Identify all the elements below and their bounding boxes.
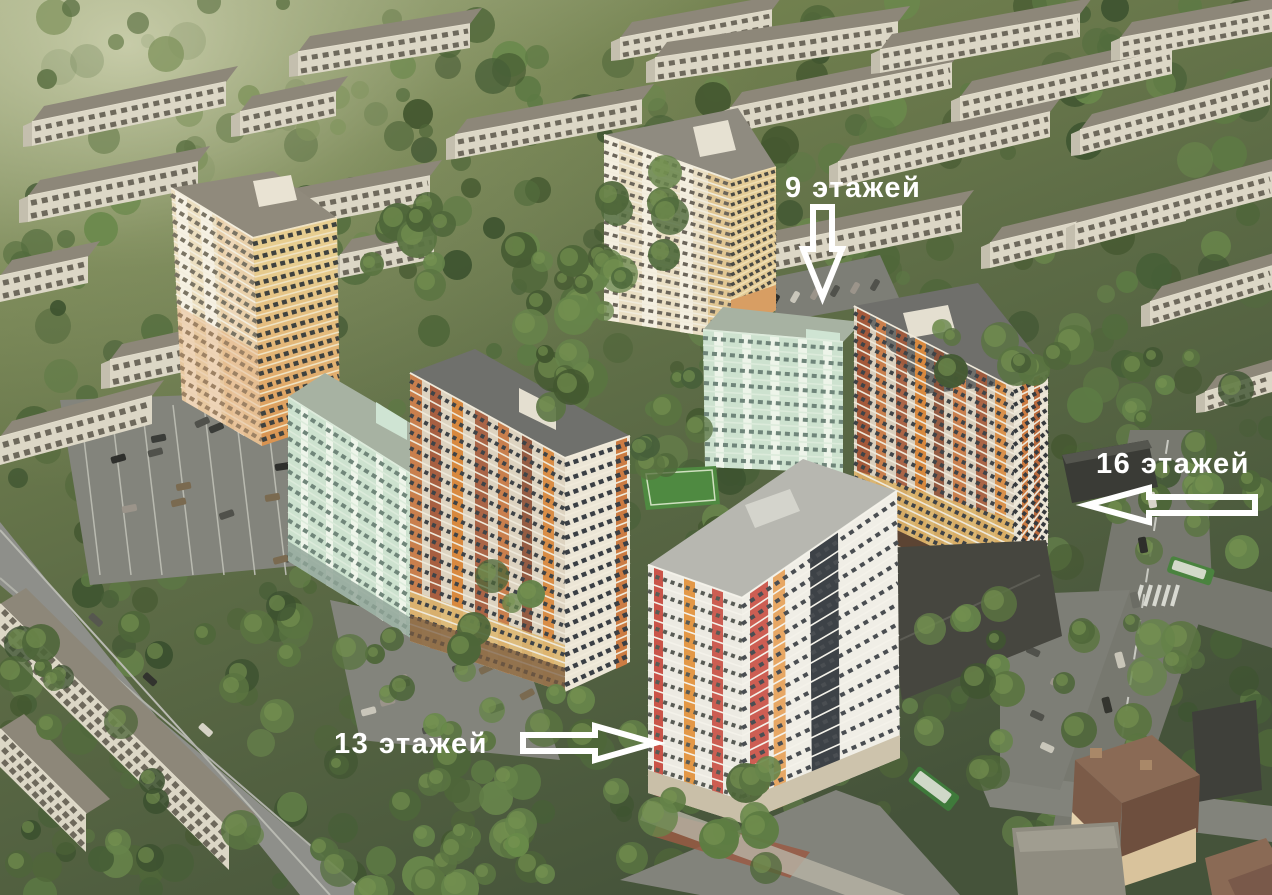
svg-text:9 этажей: 9 этажей (785, 172, 921, 204)
svg-text:13 этажей: 13 этажей (334, 728, 488, 760)
svg-text:16 этажей: 16 этажей (1096, 448, 1250, 480)
